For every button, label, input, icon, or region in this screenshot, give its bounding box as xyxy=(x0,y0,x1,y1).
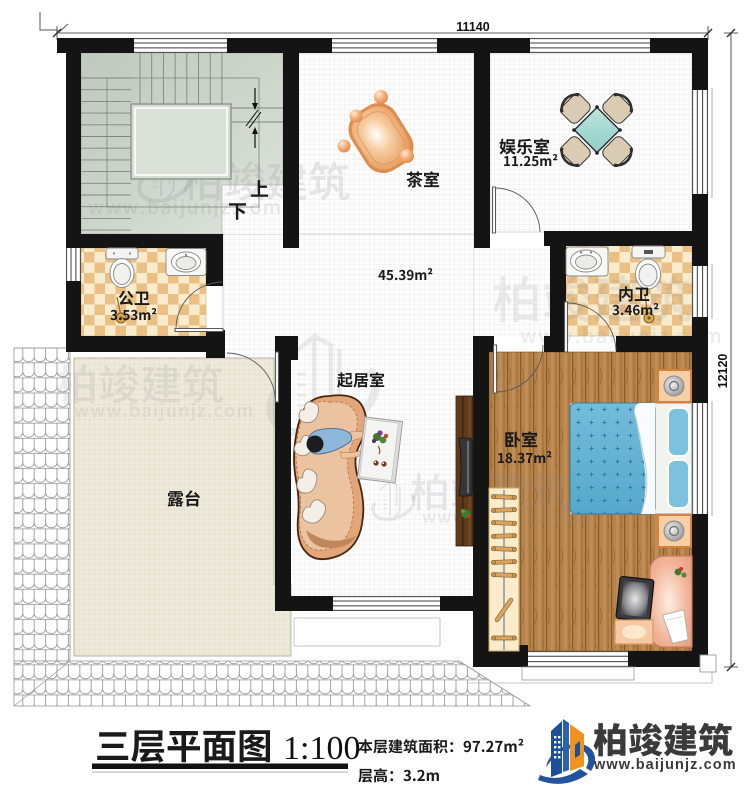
svg-text:www.baijunjz.com: www.baijunjz.com xyxy=(593,757,737,773)
svg-text:12120: 12120 xyxy=(716,354,730,389)
svg-text:1:100: 1:100 xyxy=(283,730,360,767)
svg-text:11140: 11140 xyxy=(456,20,489,34)
